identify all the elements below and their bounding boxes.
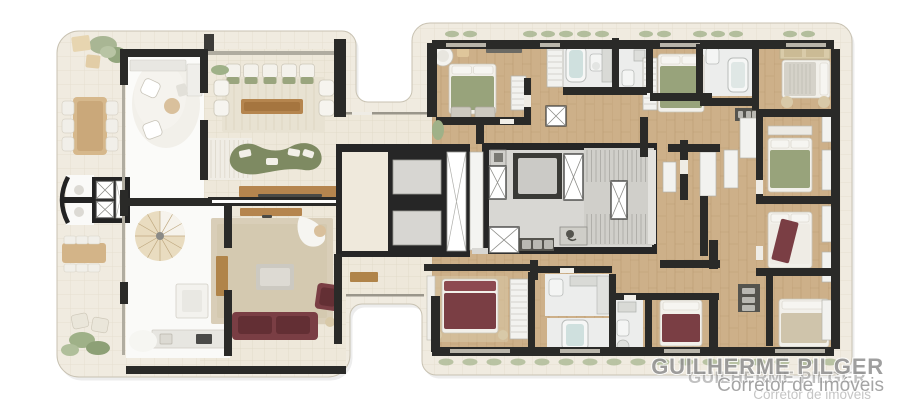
svg-text:Corretor de Imóveis: Corretor de Imóveis — [717, 375, 884, 396]
